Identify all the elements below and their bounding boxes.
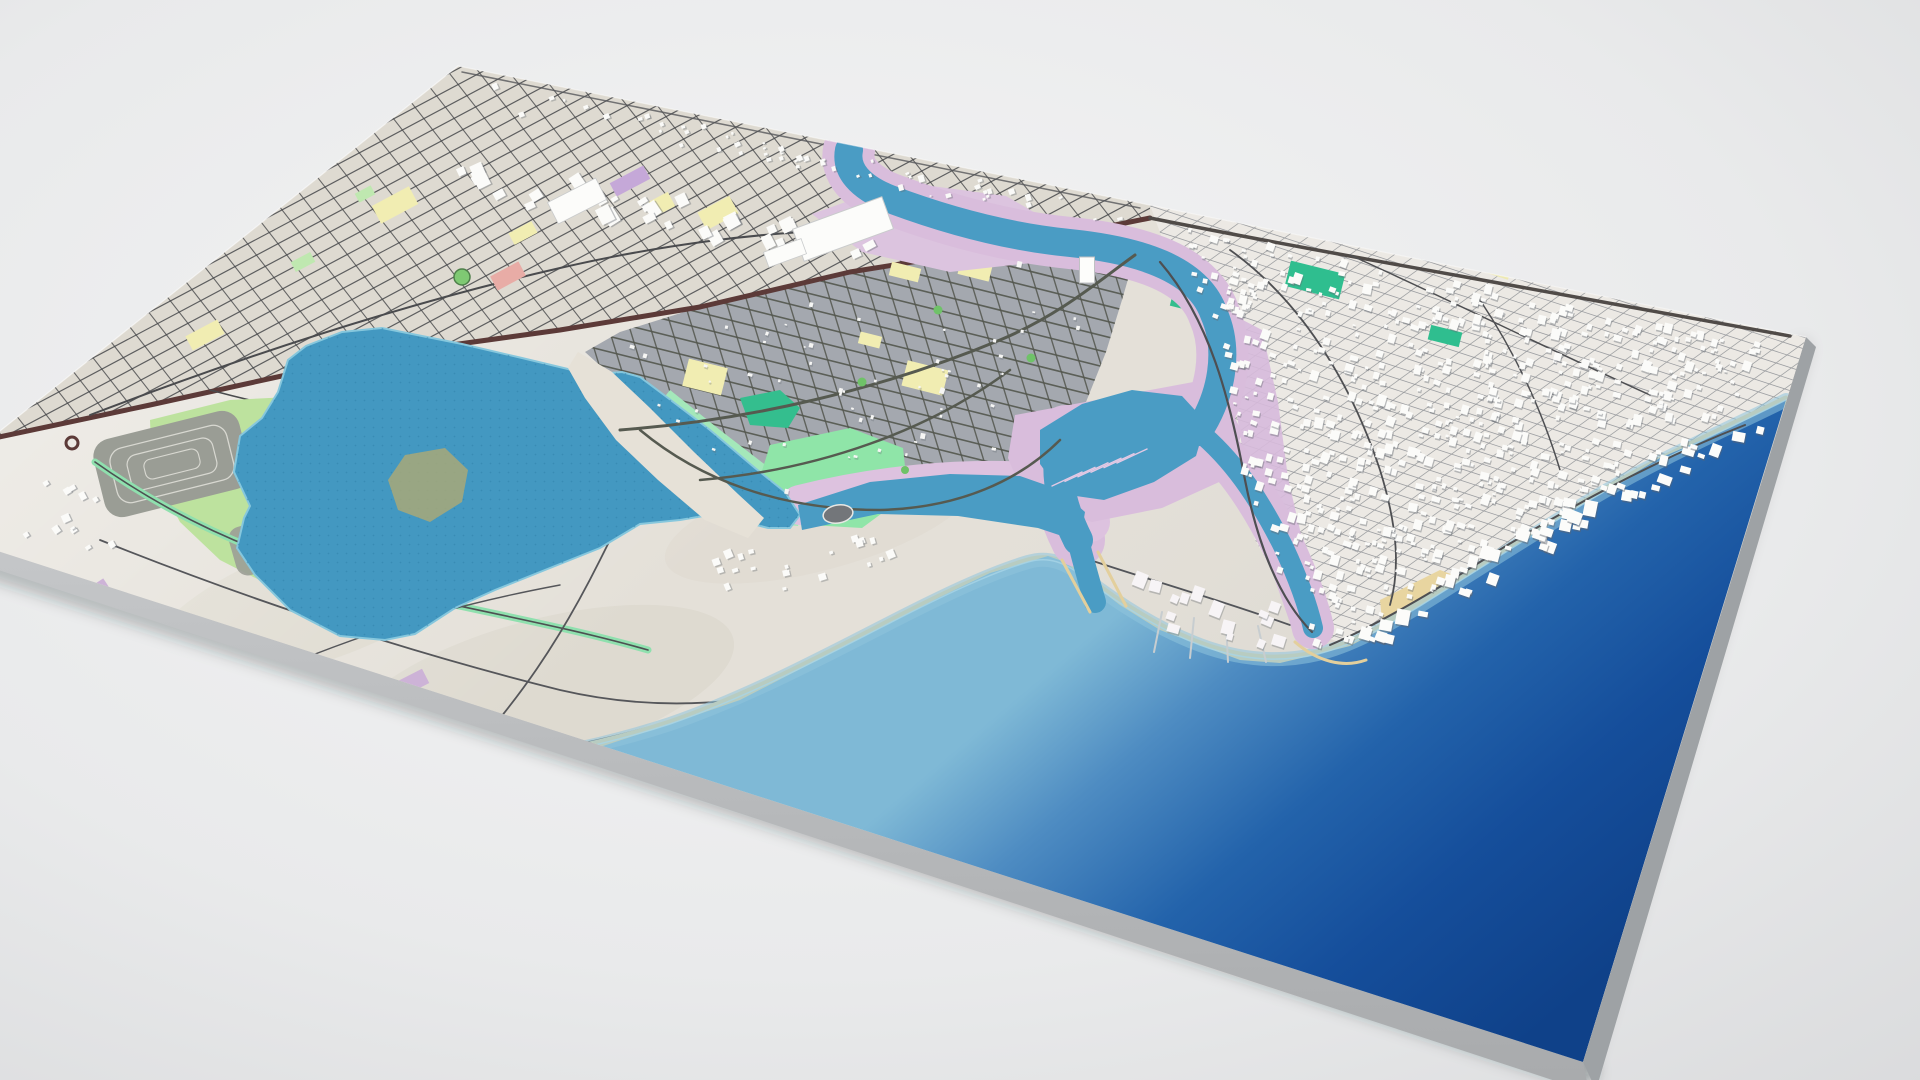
building <box>1655 323 1665 333</box>
building <box>1280 472 1290 481</box>
building <box>1210 272 1219 281</box>
map-3d-render <box>0 0 1920 1080</box>
building <box>1541 389 1551 398</box>
building <box>1407 502 1419 514</box>
building <box>1568 397 1577 405</box>
building <box>1296 513 1308 526</box>
building <box>1394 608 1412 627</box>
building <box>1357 457 1367 467</box>
building <box>1382 527 1393 539</box>
building <box>1276 456 1285 465</box>
building <box>1302 463 1312 473</box>
viewport-3d[interactable] <box>0 0 1920 1080</box>
building <box>1433 549 1444 560</box>
